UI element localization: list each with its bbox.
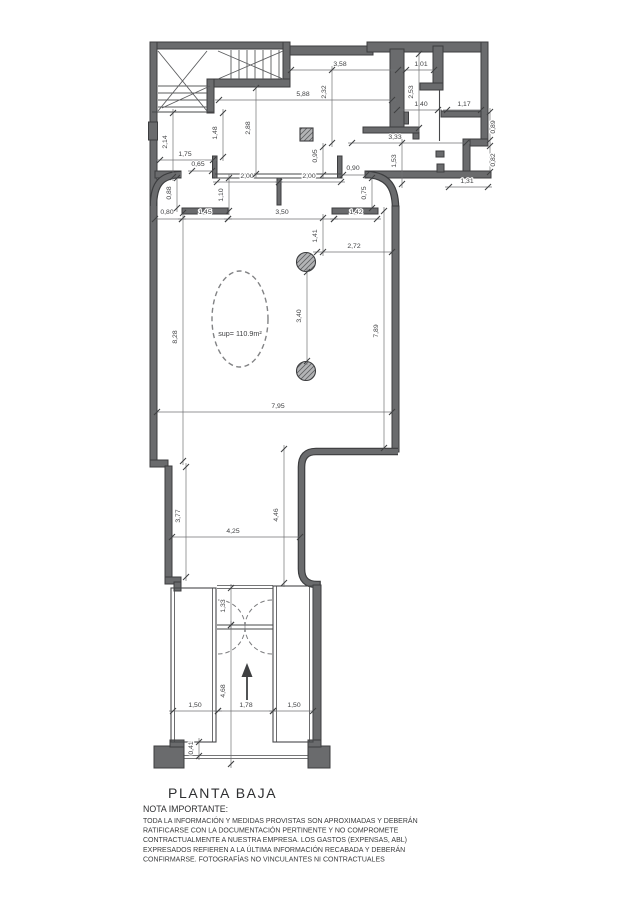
- dimension: 2,32: [321, 66, 335, 147]
- wall: [150, 42, 290, 49]
- dimension-label: 1,45: [198, 209, 211, 216]
- stair-mid-wall: [207, 79, 290, 87]
- dimension-label: 0,95: [312, 149, 319, 162]
- wall: [150, 42, 157, 462]
- dimension-label: 1,75: [178, 151, 191, 158]
- dimension: 0,41: [188, 738, 202, 760]
- dimension-label: 3,50: [275, 209, 288, 216]
- dimension-label: 0,89: [490, 120, 497, 133]
- dimension-label: 0,90: [346, 165, 359, 172]
- dimension-label: 1,50: [188, 702, 201, 709]
- dimension-label: 1,42: [349, 209, 362, 216]
- wall-pilaster: [149, 122, 158, 140]
- wall: [481, 42, 488, 146]
- dimension-label: 1,17: [457, 101, 470, 108]
- dimension: 3,77: [175, 463, 189, 581]
- dimension-label: 2,00: [302, 173, 315, 180]
- wall: [165, 466, 172, 578]
- wall: [363, 127, 419, 133]
- dimension-label: 7,89: [373, 324, 380, 337]
- round-column: [297, 253, 316, 272]
- dimension-label: 2,14: [162, 135, 169, 148]
- dimension-label: 3,77: [175, 509, 182, 522]
- note-line: RATIFICARSE CON LA DOCUMENTACIÓN PERTINE…: [143, 826, 399, 835]
- dimension: 2,14: [162, 109, 176, 181]
- dimension: 8,28: [172, 209, 186, 465]
- dimension: 4,68: [220, 621, 234, 768]
- floor-plan-page: sup= 110.9m²: [0, 0, 636, 900]
- dimension: 1,31: [445, 178, 492, 190]
- dimension: 1,50: [169, 702, 222, 714]
- wall: [285, 46, 373, 55]
- dimension: 2,00: [213, 173, 283, 185]
- dimension: 4,25: [168, 528, 304, 540]
- dimension-label: 0,80: [160, 209, 173, 216]
- dimension-label: 1,78: [239, 702, 252, 709]
- columns: [297, 128, 316, 381]
- dimension-label: 1,53: [391, 154, 398, 167]
- entrance: [171, 586, 313, 759]
- dimension-label: 1,10: [218, 188, 225, 201]
- stair-right-wall: [283, 42, 290, 84]
- dimension-label: 1,48: [212, 126, 219, 139]
- dimension: 1,53: [391, 139, 405, 188]
- up-arrow-icon: [242, 663, 253, 700]
- dimension-label: 1,33: [220, 599, 227, 612]
- wall: [367, 42, 487, 52]
- stair-mid-wall: [207, 79, 214, 113]
- dimension-label: 1,01: [414, 61, 427, 68]
- dimension-label: 3,33: [388, 134, 401, 141]
- wall: [404, 112, 409, 124]
- dimension-label: 2,72: [347, 243, 360, 250]
- dimension: 3,33: [348, 134, 470, 146]
- dimension-layer: 3,581,015,881,401,173,331,311,750,652,00…: [151, 50, 497, 768]
- note-body: TODA LA INFORMACIÓN Y MEDIDAS PROVISTAS …: [143, 816, 418, 863]
- entry-pillar: [308, 746, 330, 768]
- note-line: CONTRACTUALMENTE A NUESTRA EMPRESA. LOS …: [143, 837, 407, 844]
- dimension: 7,95: [153, 403, 396, 415]
- corridor-wall: [302, 452, 399, 589]
- area-oval: [212, 271, 268, 367]
- dimension: 2,88: [245, 84, 259, 178]
- dimension: 7,89: [373, 207, 387, 452]
- dimension-label: 2,88: [245, 121, 252, 134]
- dimension-label: 1,41: [312, 229, 319, 242]
- note-line: CONFIRMARSE. FOTOGRAFÍAS NO VINCULANTES …: [143, 854, 385, 863]
- wall: [308, 740, 321, 747]
- dimension: 3,58: [287, 61, 402, 73]
- area-label: sup= 110.9m²: [218, 329, 262, 338]
- dimension-label: 1,50: [287, 702, 300, 709]
- plan-title: PLANTA BAJA: [168, 785, 277, 801]
- dimension-label: 4,46: [273, 508, 280, 521]
- floor-plan-drawing: sup= 110.9m²: [0, 0, 636, 900]
- round-column: [297, 362, 316, 381]
- corridor-wall: [302, 452, 399, 589]
- wall: [420, 83, 443, 90]
- dimension-label: 7,95: [271, 403, 284, 410]
- dimension-label: 0,41: [188, 741, 195, 754]
- dimension: 1,33: [220, 584, 234, 629]
- outer-walls: [149, 42, 492, 768]
- dimension: 0,75: [361, 174, 375, 212]
- dimension-label: 2,53: [408, 85, 415, 98]
- dimension: 4,46: [273, 445, 287, 587]
- wall: [413, 133, 419, 139]
- note-heading: NOTA IMPORTANTE:: [143, 804, 228, 814]
- dimension-label: 8,28: [172, 330, 179, 343]
- dimension-label: 5,88: [296, 91, 309, 98]
- dimension-label: 2,32: [321, 85, 328, 98]
- display-window: [273, 586, 313, 742]
- entry-pillar: [154, 746, 184, 768]
- dimension-label: 3,58: [333, 61, 346, 68]
- dimension-label: 0,82: [490, 153, 497, 166]
- wall: [463, 139, 470, 172]
- wall: [390, 49, 404, 133]
- wall: [392, 206, 399, 452]
- dimension-label: 0,75: [361, 186, 368, 199]
- dimension-label: 1,31: [460, 178, 473, 185]
- note-line: TODA LA INFORMACIÓN Y MEDIDAS PROVISTAS …: [143, 816, 418, 825]
- dimension-label: 3,40: [296, 309, 303, 322]
- dimension-label: 0,65: [191, 161, 204, 168]
- dimension: 5,88: [215, 91, 396, 103]
- dimension: 1,48: [212, 109, 226, 161]
- dimension-label: 2,00: [240, 173, 253, 180]
- wall: [313, 585, 321, 747]
- wall: [174, 582, 181, 591]
- dimension: 3,40: [296, 268, 310, 365]
- dimension: 2,00: [275, 173, 345, 185]
- wall: [437, 164, 444, 172]
- dimension-label: 4,68: [220, 684, 227, 697]
- dimension-label: 1,40: [414, 101, 427, 108]
- dimension: 1,75: [156, 151, 217, 163]
- dimension: 0,65: [188, 161, 216, 174]
- display-window: [171, 588, 216, 742]
- note-line: EXPRESADOS REFIEREN A LA ÚLTIMA INFORMAC…: [143, 845, 405, 854]
- dimension: 1,78: [214, 702, 277, 714]
- wall: [170, 740, 184, 747]
- square-column: [300, 128, 313, 141]
- dimension-label: 4,25: [226, 528, 239, 535]
- dimension-label: 0,88: [166, 186, 173, 199]
- wall: [436, 151, 444, 157]
